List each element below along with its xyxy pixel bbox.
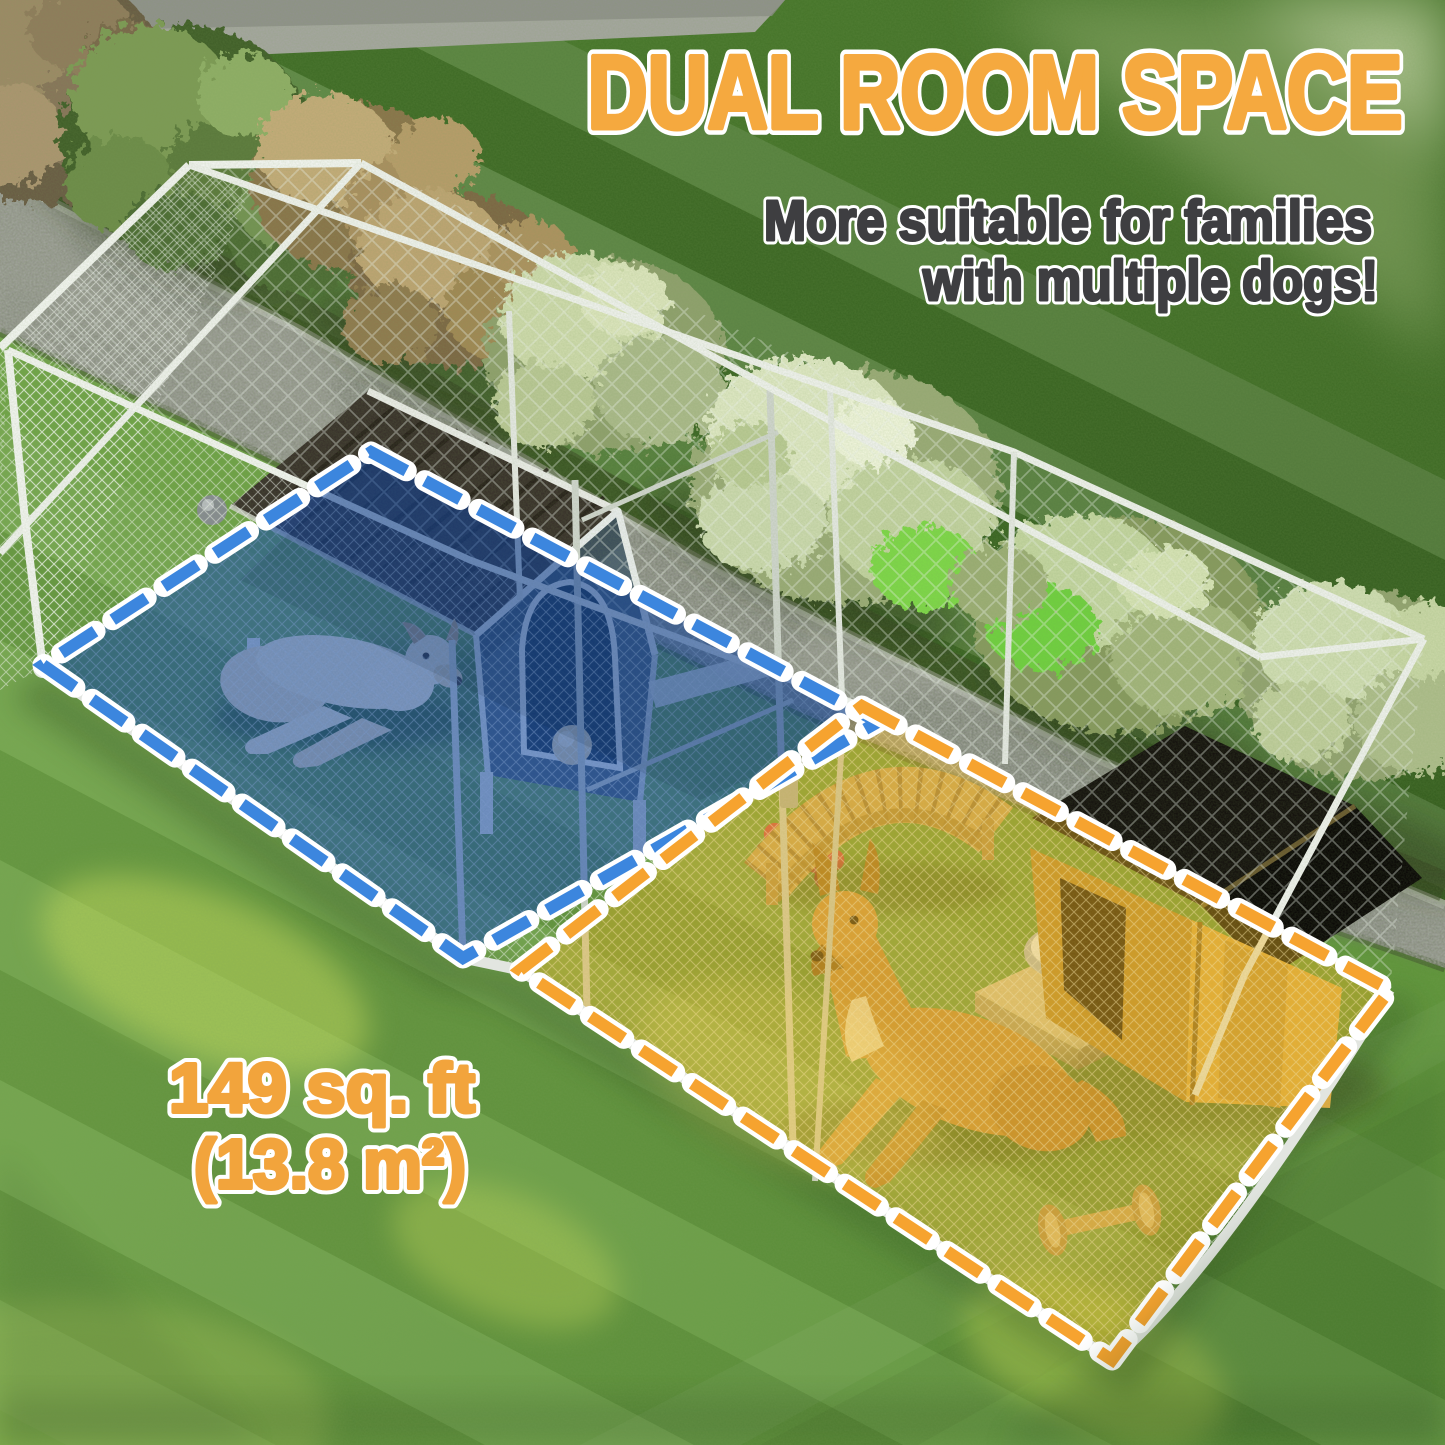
svg-text:149 sq. ft: 149 sq. ft: [169, 1049, 475, 1127]
svg-text:More suitable for families: More suitable for families: [764, 189, 1372, 253]
svg-text:DUAL ROOM SPACE: DUAL ROOM SPACE: [588, 35, 1403, 151]
svg-text:(13.8 m²): (13.8 m²): [194, 1125, 466, 1203]
svg-text:with multiple dogs!: with multiple dogs!: [922, 249, 1378, 313]
